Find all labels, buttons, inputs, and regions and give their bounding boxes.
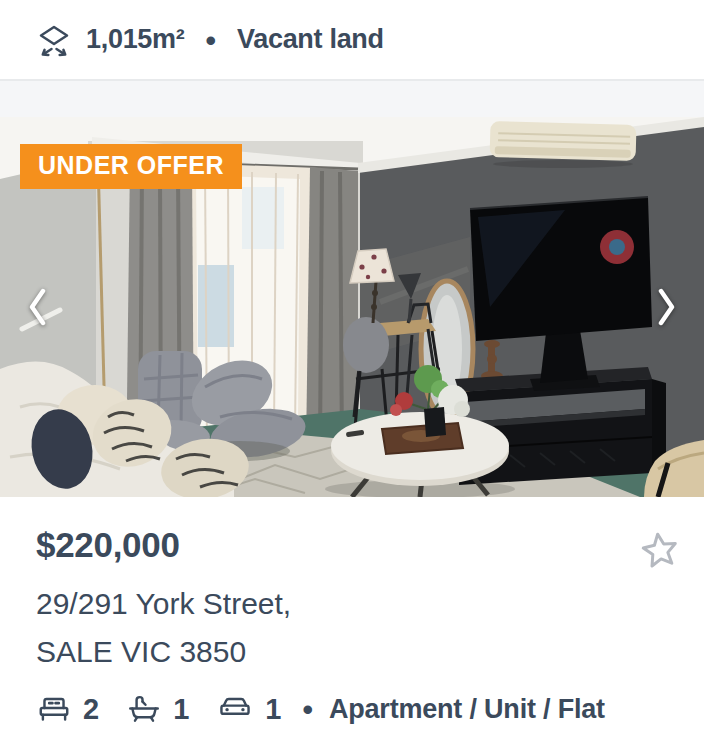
carousel-prev-button[interactable] xyxy=(12,275,64,339)
separator-dot: • xyxy=(205,26,216,56)
property-type-label: Apartment / Unit / Flat xyxy=(329,694,605,725)
car-icon xyxy=(216,691,254,727)
save-property-button[interactable] xyxy=(636,527,684,575)
chevron-right-icon xyxy=(654,286,678,328)
search-results-screen: 1,015m² • Vacant land xyxy=(0,0,704,746)
previous-property-type-label: Vacant land xyxy=(237,24,384,55)
address-line-2: SALE VIC 3850 xyxy=(36,628,680,676)
beds-feature: 2 xyxy=(36,691,99,727)
listing-address: 29/291 York Street, SALE VIC 3850 xyxy=(36,580,680,676)
listing-card: UNDER OFFER $220,000 xyxy=(0,117,704,727)
separator-dot: • xyxy=(302,695,313,725)
bath-icon xyxy=(126,691,162,727)
cars-count: 1 xyxy=(265,693,281,726)
chevron-left-icon xyxy=(26,286,50,328)
previous-listing-row[interactable]: 1,015m² • Vacant land xyxy=(0,0,704,81)
star-icon xyxy=(638,529,682,573)
beds-count: 2 xyxy=(83,693,99,726)
baths-feature: 1 xyxy=(126,691,189,727)
baths-count: 1 xyxy=(173,693,189,726)
address-line-1: 29/291 York Street, xyxy=(36,580,680,628)
bed-icon xyxy=(36,691,72,727)
status-badge: UNDER OFFER xyxy=(20,144,242,189)
features-row: 2 1 xyxy=(36,691,680,727)
listing-price: $220,000 xyxy=(36,523,680,567)
cars-feature: 1 xyxy=(216,691,281,727)
carousel-next-button[interactable] xyxy=(640,275,692,339)
card-gap xyxy=(0,81,704,117)
land-size-value: 1,015m² xyxy=(86,24,184,55)
land-size-icon xyxy=(34,20,74,60)
listing-details[interactable]: $220,000 29/291 York Street, SALE VIC 38… xyxy=(0,497,704,727)
property-photo[interactable]: UNDER OFFER xyxy=(0,117,704,497)
